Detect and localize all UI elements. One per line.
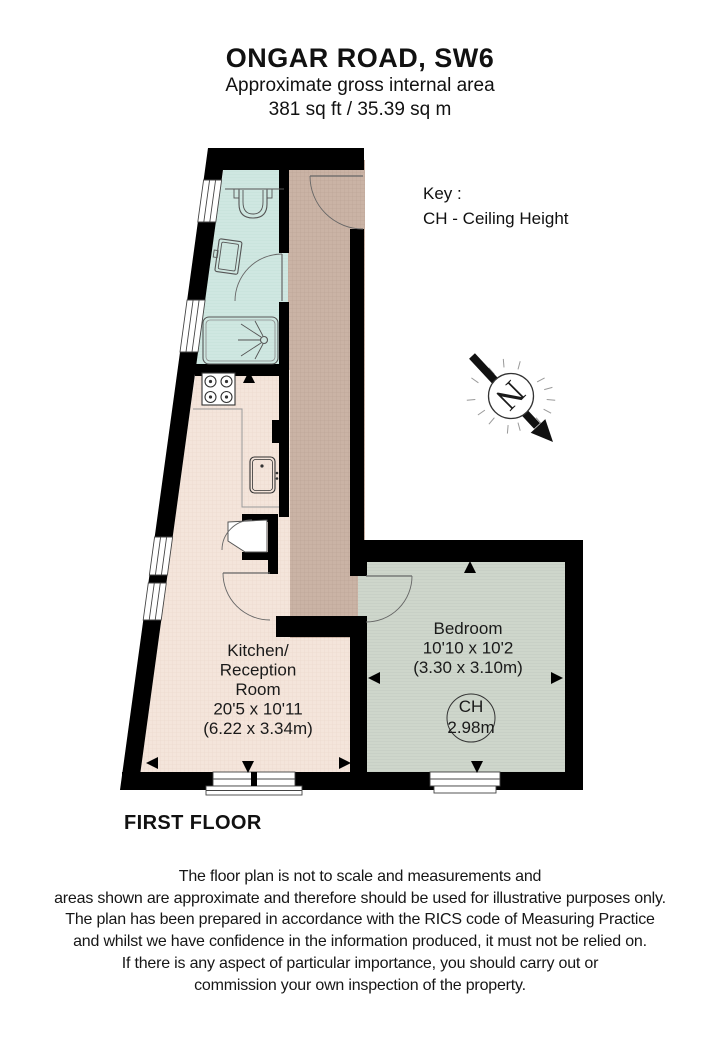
- wall-bedroom-right: [565, 540, 583, 790]
- wall-bottom: [122, 772, 583, 790]
- wall-top: [208, 148, 364, 170]
- disclaimer-line: areas shown are approximate and therefor…: [0, 888, 720, 910]
- kitchen-dims-metric: (6.22 x 3.34m): [203, 719, 313, 738]
- wall-kitchen-hall: [279, 376, 289, 517]
- ceiling-height-label: CH: [459, 697, 484, 716]
- bedroom-name: Bedroom: [434, 619, 503, 638]
- wall-kitchen-bedroom-lower: [350, 620, 367, 772]
- kitchen-name-line2: Reception: [220, 661, 297, 680]
- disclaimer-line: The plan has been prepared in accordance…: [0, 909, 720, 931]
- disclaimer-line: commission your own inspection of the pr…: [0, 975, 720, 997]
- window-kitchen-bay: [206, 772, 302, 795]
- wall-kitchen-bedroom-upper: [350, 562, 367, 576]
- disclaimer-line: If there is any aspect of particular imp…: [0, 953, 720, 975]
- hob: [202, 373, 235, 405]
- ceiling-height-value: 2.98m: [447, 718, 494, 737]
- kitchen-dims-imperial: 20'5 x 10'11: [213, 700, 302, 719]
- disclaimer: The floor plan is not to scale and measu…: [0, 866, 720, 996]
- kitchen-name-line3: Room: [235, 680, 280, 699]
- kitchen-name-line1: Kitchen/: [227, 641, 289, 660]
- north-compass: N: [467, 356, 555, 442]
- wall-hall-stub: [268, 558, 278, 574]
- wall-right-upper: [350, 229, 364, 543]
- wall-stub: [272, 420, 289, 443]
- floor-label: FIRST FLOOR: [124, 812, 262, 835]
- wall-bath-hall-upper: [279, 168, 289, 253]
- disclaimer-line: and whilst we have confidence in the inf…: [0, 931, 720, 953]
- window-bedroom: [430, 772, 500, 793]
- bedroom-dims-imperial: 10'10 x 10'2: [423, 639, 514, 658]
- wall-bedroom-top: [350, 540, 583, 562]
- bedroom-dims-metric: (3.30 x 3.10m): [413, 658, 523, 677]
- disclaimer-line: The floor plan is not to scale and measu…: [0, 866, 720, 888]
- wall-bath-hall-lower: [279, 302, 289, 368]
